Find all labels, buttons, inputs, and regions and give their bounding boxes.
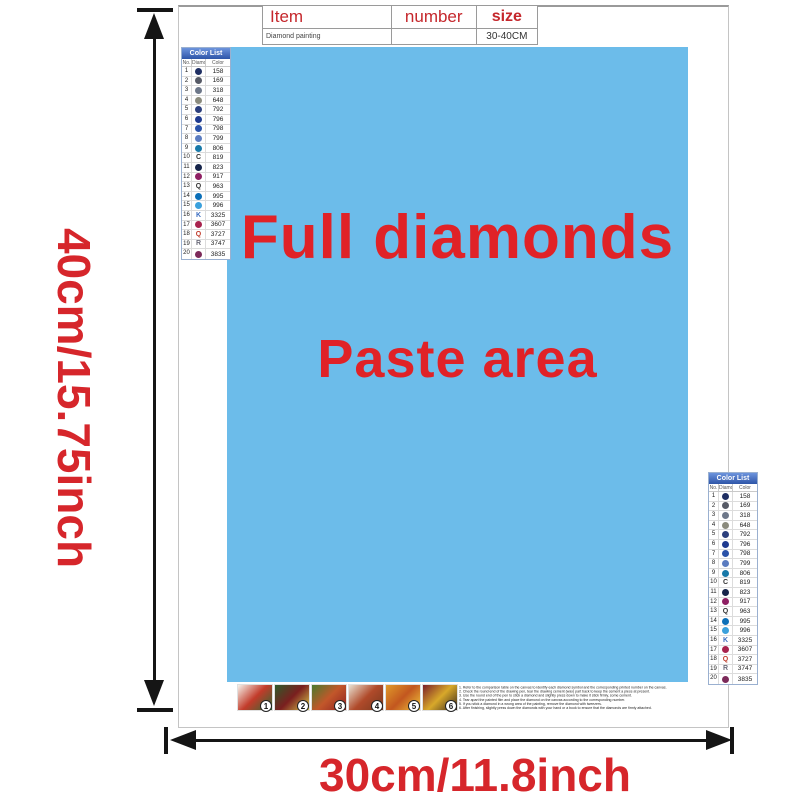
height-dimension-label: 40cm/15.75inch xyxy=(49,198,101,598)
color-code: 996 xyxy=(206,202,230,209)
diamond-dot-icon xyxy=(195,145,202,152)
color-row-number: 16 xyxy=(709,636,719,645)
color-code: 318 xyxy=(206,87,230,94)
color-list-column-headers: No. Diamond Color xyxy=(182,59,230,67)
diamond-symbol: C xyxy=(192,153,206,162)
color-code: 648 xyxy=(206,97,230,104)
diamond-symbol: C xyxy=(719,578,733,587)
color-row: 6796 xyxy=(182,115,230,125)
diamond-symbol xyxy=(719,511,733,520)
color-row-number: 1 xyxy=(709,492,719,501)
height-arrow-line xyxy=(153,32,156,684)
diamond-symbol xyxy=(192,192,206,201)
color-code: 169 xyxy=(206,77,230,84)
diamond-symbol: K xyxy=(192,211,206,220)
diamond-dot-icon xyxy=(195,106,202,113)
height-arrow-top-cap xyxy=(137,8,173,12)
color-row-number: 2 xyxy=(182,77,192,86)
color-row: 7798 xyxy=(709,550,757,560)
color-code: 823 xyxy=(206,164,230,171)
color-row: 18Q3727 xyxy=(709,655,757,665)
color-row-number: 12 xyxy=(182,173,192,182)
width-arrow-left-cap xyxy=(164,727,168,754)
color-row: 19R3747 xyxy=(709,665,757,675)
item-info-table: Item number size Diamond painting 30-40C… xyxy=(262,5,538,45)
color-list-title: Color List xyxy=(182,48,230,59)
diamond-symbol xyxy=(719,492,733,501)
diamond-symbol xyxy=(192,173,206,182)
color-row-number: 4 xyxy=(709,521,719,530)
step-thumbnail: 2 xyxy=(274,684,310,711)
step-number-badge: 6 xyxy=(445,700,457,712)
color-row: 3318 xyxy=(709,511,757,521)
step-thumbnail: 1 xyxy=(237,684,273,711)
color-list-left: Color List No. Diamond Color 11582169331… xyxy=(181,47,231,260)
color-row-number: 9 xyxy=(182,144,192,153)
color-row-number: 6 xyxy=(709,540,719,549)
item-header: Item xyxy=(263,7,303,27)
diamond-dot-icon xyxy=(195,77,202,84)
diamond-symbol xyxy=(192,125,206,134)
item-name-value: Diamond painting xyxy=(263,33,320,40)
color-code: 648 xyxy=(733,522,757,529)
color-code: 3835 xyxy=(206,251,230,258)
color-list-column-headers: No. Diamond Color xyxy=(709,484,757,492)
color-code: 796 xyxy=(206,116,230,123)
color-row-number: 13 xyxy=(182,182,192,191)
color-row-number: 16 xyxy=(182,211,192,220)
color-row: 16K3325 xyxy=(182,211,230,221)
diamond-dot-icon xyxy=(195,221,202,228)
color-row: 11823 xyxy=(182,163,230,173)
color-code: 798 xyxy=(206,125,230,132)
diamond-symbol: R xyxy=(192,240,206,249)
color-code: 806 xyxy=(206,145,230,152)
color-code: 792 xyxy=(206,106,230,113)
color-code: 3607 xyxy=(733,646,757,653)
diamond-symbol xyxy=(192,221,206,230)
color-row-number: 6 xyxy=(182,115,192,124)
color-code: 3727 xyxy=(733,656,757,663)
color-row-number: 5 xyxy=(709,530,719,539)
color-row: 19R3747 xyxy=(182,240,230,250)
diamond-symbol xyxy=(192,105,206,114)
step-number-badge: 4 xyxy=(371,700,383,712)
color-row-number: 10 xyxy=(709,578,719,587)
diamond-symbol xyxy=(719,530,733,539)
diamond-symbol xyxy=(192,67,206,76)
color-code: 3747 xyxy=(206,240,230,247)
color-code: 799 xyxy=(733,560,757,567)
diamond-symbol xyxy=(192,144,206,153)
diamond-dot-icon xyxy=(195,251,202,258)
color-row-number: 4 xyxy=(182,96,192,105)
color-row-number: 15 xyxy=(182,201,192,210)
diamond-symbol xyxy=(192,201,206,210)
color-row-number: 11 xyxy=(182,163,192,172)
diamond-dot-icon xyxy=(195,125,202,132)
color-code: 169 xyxy=(733,502,757,509)
color-row: 4648 xyxy=(182,96,230,106)
color-row-number: 1 xyxy=(182,67,192,76)
diamond-dot-icon xyxy=(722,550,729,557)
color-row: 1158 xyxy=(182,67,230,77)
color-row: 2169 xyxy=(709,502,757,512)
diamond-dot-icon xyxy=(722,589,729,596)
color-row-number: 3 xyxy=(182,86,192,95)
item-table-value-row: Diamond painting 30-40CM xyxy=(263,29,537,44)
color-row-number: 18 xyxy=(709,655,719,664)
step-number-badge: 1 xyxy=(260,700,272,712)
diamond-symbol xyxy=(192,86,206,95)
color-row-number: 13 xyxy=(709,607,719,616)
diamond-symbol xyxy=(192,249,206,259)
color-row-number: 20 xyxy=(709,674,719,684)
width-arrow-line xyxy=(194,739,708,742)
color-row: 14995 xyxy=(182,192,230,202)
color-row: 12917 xyxy=(182,173,230,183)
diamond-dot-icon xyxy=(722,618,729,625)
color-list-title: Color List xyxy=(709,473,757,484)
diamond-symbol: Q xyxy=(192,182,206,191)
height-arrow-bottom-cap xyxy=(137,708,173,712)
color-code: 3727 xyxy=(206,231,230,238)
color-row: 16K3325 xyxy=(709,636,757,646)
step-thumbnail: 5 xyxy=(385,684,421,711)
color-code: 158 xyxy=(733,493,757,500)
diamond-symbol: R xyxy=(719,665,733,674)
diamond-symbol: Q xyxy=(192,230,206,239)
color-row: 9806 xyxy=(709,569,757,579)
color-row: 18Q3727 xyxy=(182,230,230,240)
color-row: 4648 xyxy=(709,521,757,531)
number-header: number xyxy=(405,7,463,27)
color-code: 996 xyxy=(733,627,757,634)
color-row: 1158 xyxy=(709,492,757,502)
diamond-dot-icon xyxy=(722,560,729,567)
diamond-symbol: K xyxy=(719,636,733,645)
color-code: 917 xyxy=(206,173,230,180)
diamond-dot-icon xyxy=(722,502,729,509)
color-row: 5792 xyxy=(709,530,757,540)
color-row: 12917 xyxy=(709,598,757,608)
color-code: 792 xyxy=(733,531,757,538)
color-code: 995 xyxy=(206,193,230,200)
color-row-number: 3 xyxy=(709,511,719,520)
item-table-header-row: Item number size xyxy=(263,6,537,29)
diamond-dot-icon xyxy=(722,646,729,653)
diamond-dot-icon xyxy=(722,522,729,529)
diamond-symbol xyxy=(192,163,206,172)
color-code: 3747 xyxy=(733,665,757,672)
color-code: 963 xyxy=(733,608,757,615)
color-code: 796 xyxy=(733,541,757,548)
diamond-symbol xyxy=(192,77,206,86)
color-row-number: 12 xyxy=(709,598,719,607)
diamond-dot-icon xyxy=(195,135,202,142)
color-row: 13Q963 xyxy=(709,607,757,617)
diamond-symbol xyxy=(719,550,733,559)
diamond-dot-icon xyxy=(722,598,729,605)
color-code: 3835 xyxy=(733,676,757,683)
height-arrow-down-head xyxy=(144,680,164,706)
diamond-symbol: Q xyxy=(719,607,733,616)
diamond-symbol xyxy=(192,134,206,143)
diamond-symbol: Q xyxy=(719,655,733,664)
diamond-symbol xyxy=(719,502,733,511)
color-row: 14995 xyxy=(709,617,757,627)
diamond-dot-icon xyxy=(722,627,729,634)
color-row: 5792 xyxy=(182,105,230,115)
color-row-number: 19 xyxy=(709,665,719,674)
width-arrow-right-head xyxy=(706,730,732,750)
color-code: 963 xyxy=(206,183,230,190)
color-row: 7798 xyxy=(182,125,230,135)
step-thumbnail: 6 xyxy=(422,684,458,711)
color-row-number: 7 xyxy=(182,125,192,134)
color-row-number: 8 xyxy=(709,559,719,568)
color-code: 318 xyxy=(733,512,757,519)
color-row: 6796 xyxy=(709,540,757,550)
color-row: 11823 xyxy=(709,588,757,598)
diamond-symbol xyxy=(719,521,733,530)
diamond-symbol xyxy=(719,598,733,607)
color-row-number: 17 xyxy=(182,221,192,230)
paste-area-title: Full diamonds xyxy=(241,202,674,273)
item-size-value: 30-40CM xyxy=(486,31,527,42)
color-code: 3325 xyxy=(733,637,757,644)
color-code: 823 xyxy=(733,589,757,596)
step-thumbnails: 123456 xyxy=(237,684,458,711)
step-number-badge: 3 xyxy=(334,700,346,712)
color-row: 173607 xyxy=(709,646,757,656)
color-row-number: 18 xyxy=(182,230,192,239)
color-list-right: Color List No. Diamond Color 11582169331… xyxy=(708,472,758,685)
color-row-number: 17 xyxy=(709,646,719,655)
diamond-dot-icon xyxy=(195,164,202,171)
step-thumbnail: 4 xyxy=(348,684,384,711)
color-row-number: 14 xyxy=(709,617,719,626)
width-arrow-left-head xyxy=(170,730,196,750)
color-row-number: 7 xyxy=(709,550,719,559)
step-number-badge: 2 xyxy=(297,700,309,712)
color-row-number: 15 xyxy=(709,626,719,635)
diamond-dot-icon xyxy=(195,68,202,75)
color-code: 799 xyxy=(206,135,230,142)
diamond-symbol xyxy=(719,569,733,578)
color-row-number: 2 xyxy=(709,502,719,511)
color-row: 2169 xyxy=(182,77,230,87)
size-header: size xyxy=(492,8,522,26)
color-row-number: 5 xyxy=(182,105,192,114)
color-code: 806 xyxy=(733,570,757,577)
instructions-block: 1. Refer to the comparison table on the … xyxy=(459,686,689,711)
diamond-dot-icon xyxy=(722,531,729,538)
color-row-number: 19 xyxy=(182,240,192,249)
color-row: 10C819 xyxy=(182,153,230,163)
color-code: 3325 xyxy=(206,212,230,219)
color-code: 995 xyxy=(733,618,757,625)
color-row-number: 20 xyxy=(182,249,192,259)
color-row: 3318 xyxy=(182,86,230,96)
color-code: 917 xyxy=(733,598,757,605)
color-row: 8799 xyxy=(709,559,757,569)
paste-area-subtitle: Paste area xyxy=(317,328,597,390)
diamond-dot-icon xyxy=(195,97,202,104)
color-list-body: 11582169331846485792679677988799980610C8… xyxy=(709,492,757,684)
diamond-symbol xyxy=(719,617,733,626)
step-thumbnail: 3 xyxy=(311,684,347,711)
diamond-dot-icon xyxy=(722,512,729,519)
color-row: 203835 xyxy=(709,674,757,684)
diamond-dot-icon xyxy=(722,493,729,500)
color-row: 15996 xyxy=(709,626,757,636)
color-code: 798 xyxy=(733,550,757,557)
diamond-dot-icon xyxy=(195,193,202,200)
diamond-dot-icon xyxy=(722,570,729,577)
diamond-dot-icon xyxy=(195,202,202,209)
color-code: 158 xyxy=(206,68,230,75)
diamond-dot-icon xyxy=(195,173,202,180)
instruction-line: 6. After finishing, slightly press down … xyxy=(459,707,689,711)
paste-area: Full diamonds Paste area xyxy=(227,47,688,682)
diamond-dot-icon xyxy=(195,116,202,123)
diamond-symbol xyxy=(719,626,733,635)
color-row-number: 14 xyxy=(182,192,192,201)
color-code: 3607 xyxy=(206,221,230,228)
color-row-number: 9 xyxy=(709,569,719,578)
diamond-dot-icon xyxy=(722,676,729,683)
color-row: 9806 xyxy=(182,144,230,154)
color-row-number: 8 xyxy=(182,134,192,143)
color-row: 203835 xyxy=(182,249,230,259)
color-row: 8799 xyxy=(182,134,230,144)
diamond-symbol xyxy=(192,115,206,124)
diamond-symbol xyxy=(719,646,733,655)
step-number-badge: 5 xyxy=(408,700,420,712)
diamond-symbol xyxy=(719,559,733,568)
width-dimension-label: 30cm/11.8inch xyxy=(195,748,755,800)
diamond-symbol xyxy=(719,540,733,549)
diamond-symbol xyxy=(192,96,206,105)
color-row: 173607 xyxy=(182,221,230,231)
diamond-dot-icon xyxy=(195,87,202,94)
color-row: 15996 xyxy=(182,201,230,211)
color-row: 10C819 xyxy=(709,578,757,588)
color-row-number: 11 xyxy=(709,588,719,597)
color-row: 13Q963 xyxy=(182,182,230,192)
diamond-dot-icon xyxy=(722,541,729,548)
color-code: 819 xyxy=(733,579,757,586)
color-list-body: 11582169331846485792679677988799980610C8… xyxy=(182,67,230,259)
diamond-symbol xyxy=(719,588,733,597)
diamond-symbol xyxy=(719,674,733,684)
color-row-number: 10 xyxy=(182,153,192,162)
color-code: 819 xyxy=(206,154,230,161)
